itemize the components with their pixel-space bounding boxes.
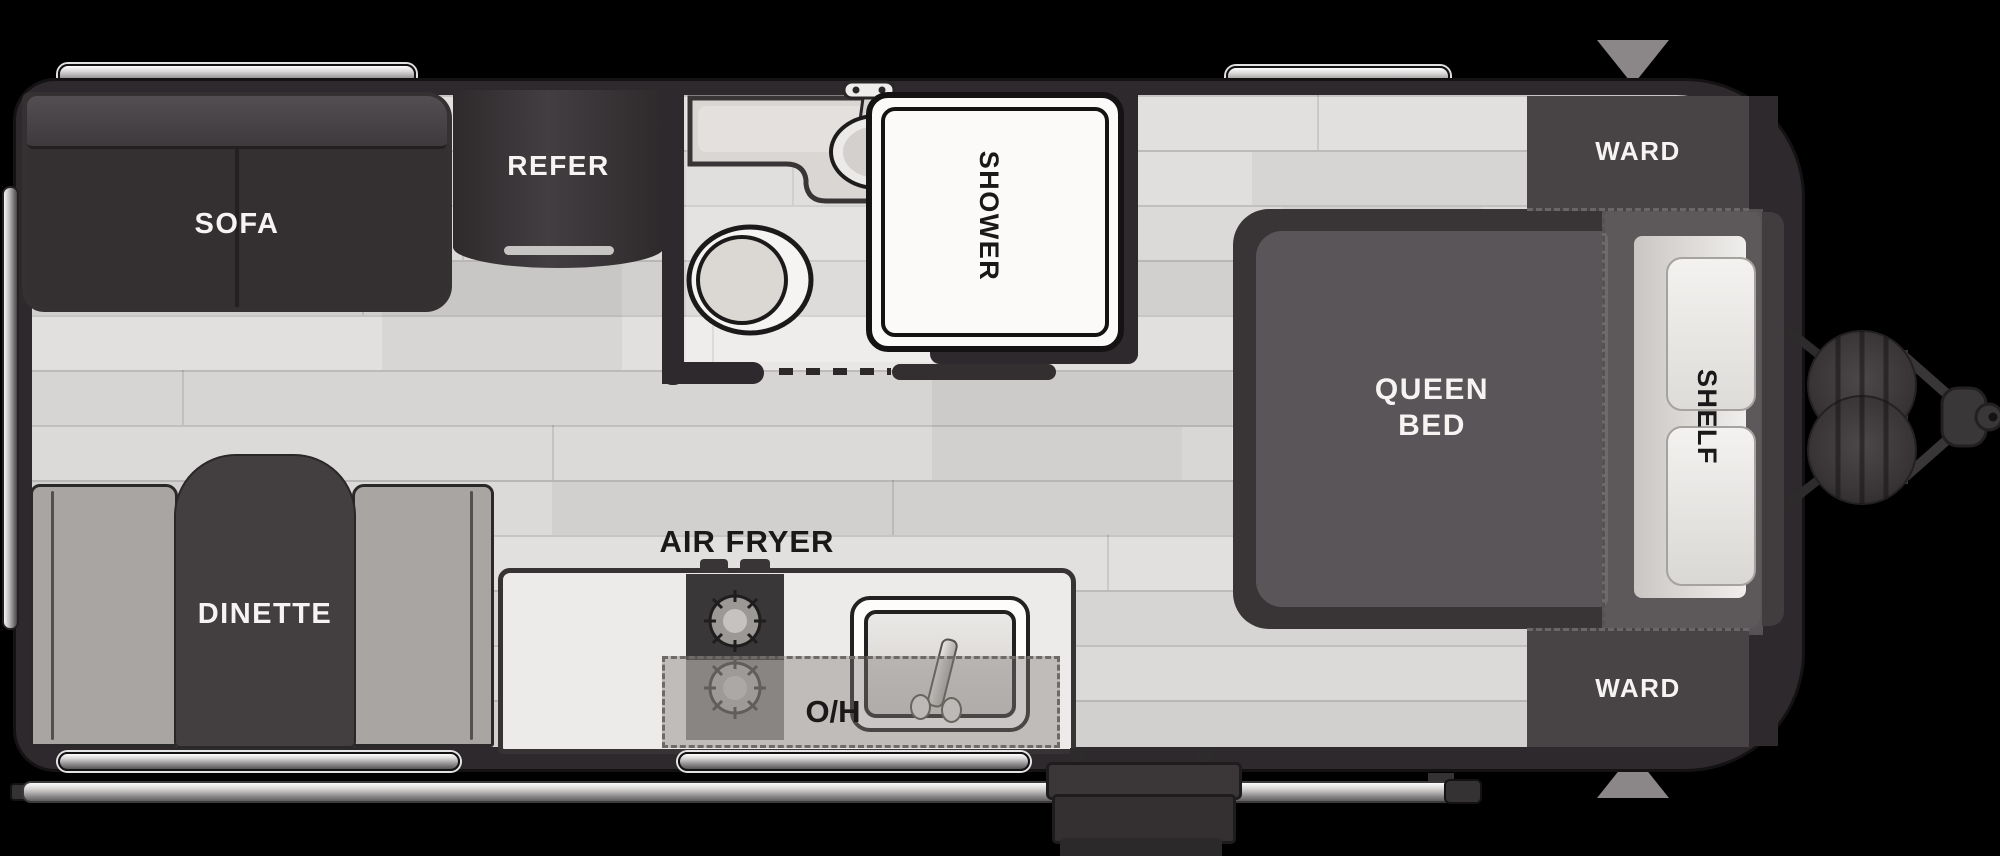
- air-fryer-label: AIR FRYER: [627, 524, 867, 560]
- bathroom-wall-stub: [662, 362, 764, 384]
- awning-tube: [22, 781, 1458, 803]
- front-cap-inner-face: [1762, 212, 1784, 626]
- refrigerator-vent: [504, 246, 614, 255]
- stove-knob: [740, 559, 770, 573]
- wardrobe-front-bottom: WARD: [1527, 628, 1749, 747]
- dinette-label: DINETTE: [176, 598, 354, 631]
- pocket-door-panel: [892, 364, 1056, 380]
- floor-plank-seam: [1107, 535, 1109, 590]
- grab-rail-entry: [678, 752, 1030, 771]
- burner-icon: [704, 590, 766, 652]
- grab-rail-rear-bottom: [58, 752, 460, 771]
- dinette-bench-right: [352, 484, 494, 747]
- sofa-back-cushion: [27, 96, 447, 149]
- dinette-bench-left: [30, 484, 178, 747]
- floorplan: SOFA REFER SHOWER QUEEN BED: [0, 0, 2000, 856]
- entry-step-2: [1052, 794, 1236, 844]
- floor-plank-seam: [182, 370, 184, 425]
- rear-bumper: [2, 186, 19, 630]
- dinette-table: DINETTE: [174, 454, 356, 748]
- floor-plank-shade: [932, 372, 1232, 480]
- floor-plank-seam: [1317, 95, 1319, 150]
- entry-step-3: [1060, 838, 1222, 856]
- queen-bed-label-line2: BED: [1256, 408, 1608, 444]
- wardrobe-front-bottom-label: WARD: [1527, 673, 1749, 704]
- queen-bed-label: QUEEN BED: [1256, 372, 1608, 444]
- shelf-label: SHELF: [1690, 317, 1724, 517]
- refrigerator-label: REFER: [453, 150, 664, 182]
- pocket-door-track: [779, 368, 891, 375]
- dinette-bench-right-armrest: [470, 491, 473, 740]
- overhead-cabinet-label: O/H: [798, 694, 868, 730]
- awning-end-cap-right: [1444, 779, 1482, 804]
- stove-knob: [700, 559, 728, 573]
- sofa: SOFA: [22, 92, 452, 312]
- wardrobe-front-top-label: WARD: [1527, 136, 1749, 167]
- queen-bed-label-line1: QUEEN: [1256, 372, 1608, 408]
- shower-label: SHOWER: [971, 86, 1007, 346]
- floor-plank-seam: [552, 425, 554, 480]
- wardrobe-front-top: WARD: [1527, 96, 1749, 211]
- toilet: [676, 222, 826, 338]
- hitch-assembly: [1782, 302, 2000, 532]
- dinette-bench-left-armrest: [51, 491, 54, 740]
- floor-plank-seam: [892, 480, 894, 535]
- sofa-label: SOFA: [22, 208, 452, 241]
